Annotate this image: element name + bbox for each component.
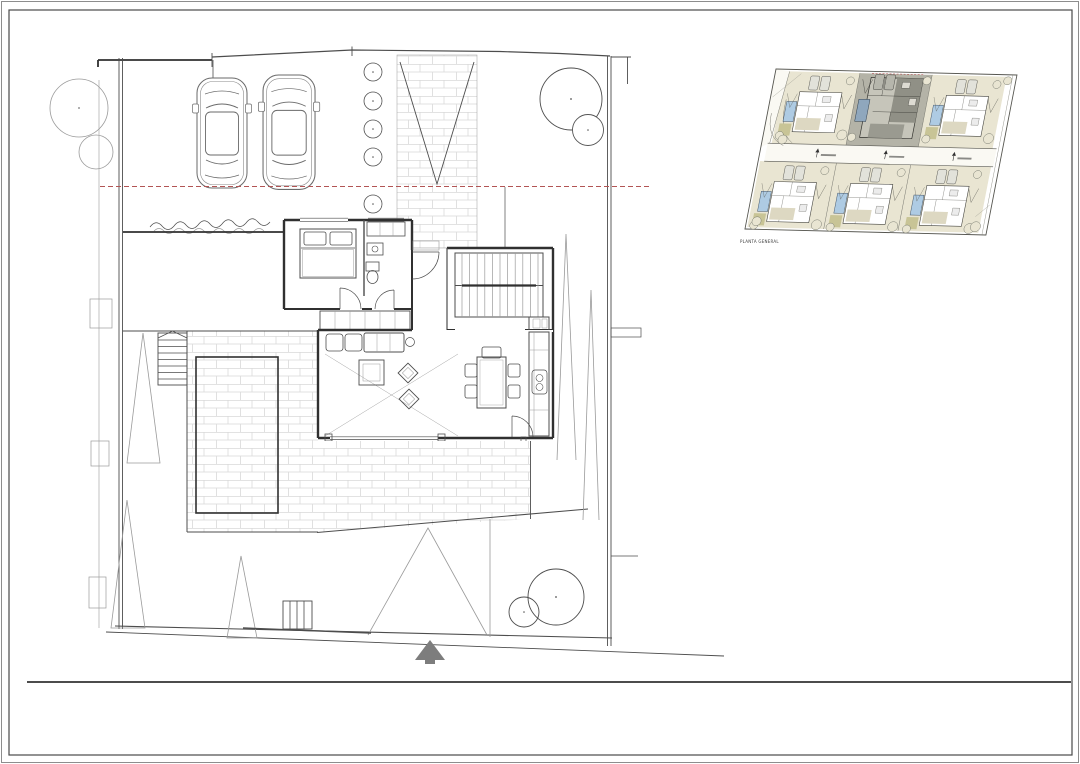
terrace <box>317 441 588 533</box>
pool-area <box>123 331 318 532</box>
site-plan-inset <box>745 69 1017 235</box>
north-arrow-icon <box>415 640 445 664</box>
car-icon <box>258 75 319 189</box>
staircase <box>447 248 553 332</box>
hedge <box>123 219 286 234</box>
house <box>284 217 553 442</box>
garden-steps <box>243 601 371 633</box>
tree-icon <box>540 68 604 146</box>
car-icon <box>193 78 252 188</box>
garden-stairs <box>158 331 187 385</box>
main-floor-plan <box>50 47 724 665</box>
drawing-sheet: PLANTA GENERAL <box>0 0 1080 764</box>
site-plan-label: PLANTA GENERAL <box>740 239 779 244</box>
planter-pots <box>364 63 382 213</box>
neighbour-trees <box>50 79 113 608</box>
drawing-canvas: PLANTA GENERAL <box>0 0 1080 764</box>
living-room <box>318 330 553 438</box>
